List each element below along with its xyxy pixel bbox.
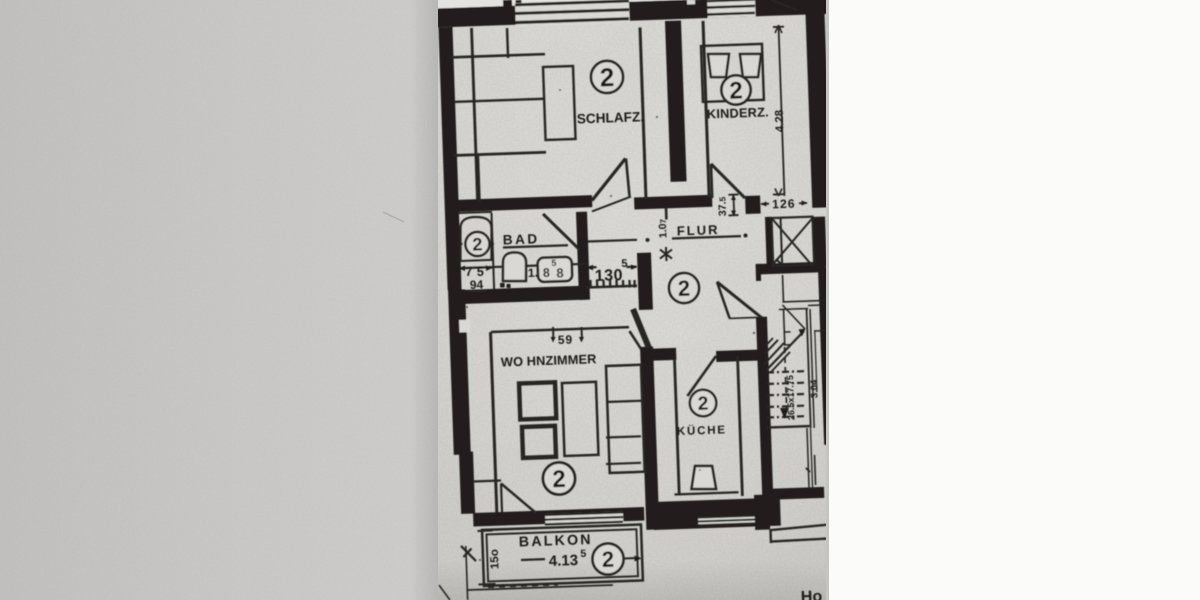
- svg-text:Ho: Ho: [801, 588, 823, 600]
- svg-text:BAD: BAD: [503, 231, 540, 247]
- svg-text:2: 2: [552, 466, 566, 493]
- svg-text:2: 2: [677, 276, 690, 301]
- svg-text:94: 94: [470, 278, 484, 292]
- svg-text:SCHLAFZ.: SCHLAFZ.: [577, 109, 645, 126]
- svg-text:2: 2: [599, 62, 615, 92]
- svg-text:5: 5: [621, 258, 628, 270]
- svg-text:59: 59: [558, 333, 574, 348]
- svg-text:8: 8: [543, 266, 550, 280]
- svg-text:4.13: 4.13: [549, 552, 579, 570]
- svg-text:15o: 15o: [489, 549, 502, 569]
- svg-text:KÜCHE: KÜCHE: [677, 423, 727, 438]
- svg-text:3.04: 3.04: [809, 379, 821, 399]
- svg-text:5: 5: [580, 548, 586, 560]
- svg-text:26.5x17.75: 26.5x17.75: [785, 375, 797, 420]
- svg-text:1.: 1.: [528, 266, 538, 280]
- svg-text:37.5: 37.5: [716, 196, 729, 216]
- svg-text:KINDERZ.: KINDERZ.: [707, 104, 770, 121]
- svg-text:2: 2: [697, 394, 708, 415]
- svg-text:2: 2: [472, 234, 483, 254]
- svg-text:8: 8: [556, 265, 564, 280]
- svg-text:4.28: 4.28: [774, 109, 787, 132]
- svg-text:7: 7: [465, 265, 472, 279]
- svg-text:2: 2: [729, 77, 743, 104]
- svg-text:126: 126: [772, 197, 796, 212]
- svg-text:2: 2: [601, 547, 614, 572]
- svg-text:1.07: 1.07: [657, 218, 670, 238]
